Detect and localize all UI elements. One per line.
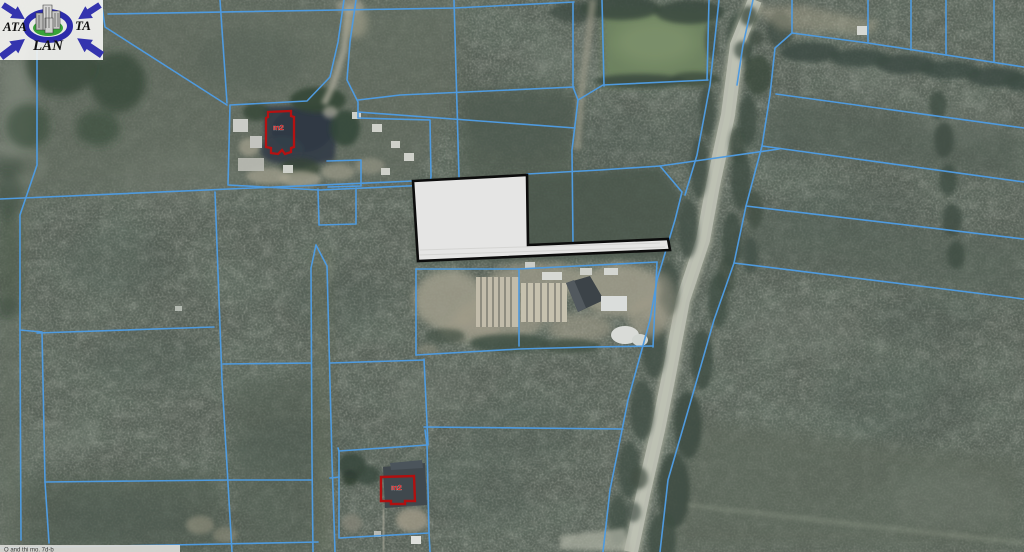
svg-text:m2: m2 bbox=[273, 123, 284, 132]
svg-text:O and thi mo. 7d-b: O and thi mo. 7d-b bbox=[4, 548, 54, 552]
svg-text:TA: TA bbox=[75, 18, 91, 33]
svg-text:LAN: LAN bbox=[32, 38, 64, 54]
svg-text:ATA: ATA bbox=[2, 19, 27, 34]
svg-text:m2: m2 bbox=[391, 483, 402, 492]
